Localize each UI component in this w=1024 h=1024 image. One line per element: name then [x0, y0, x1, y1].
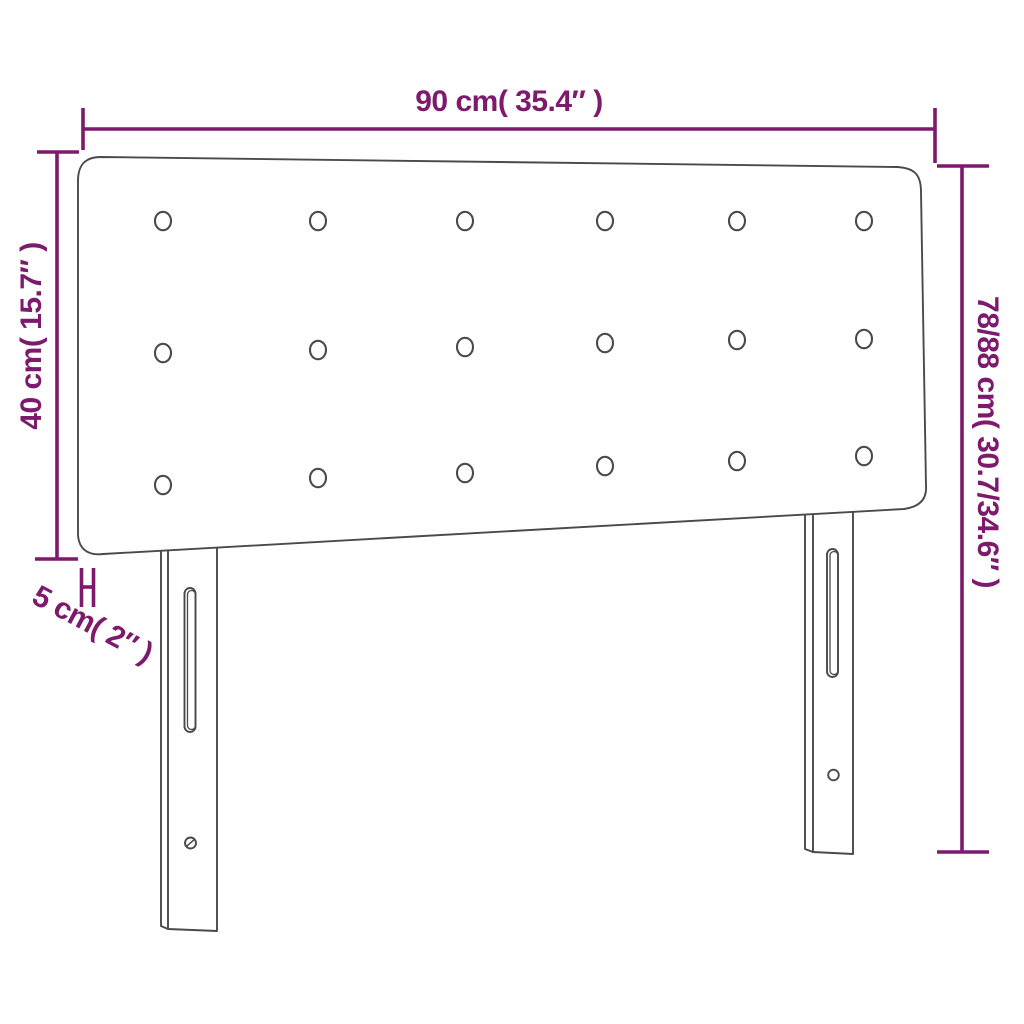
right-leg: [805, 502, 853, 854]
product-drawing: [78, 157, 926, 931]
tuft-button: [729, 212, 745, 230]
tuft-button: [155, 476, 171, 494]
headboard-dimension-diagram: 90 cm( 35.4″ ) 40 cm( 15.7″ ) 78/88 cm( …: [0, 0, 1024, 1024]
left-leg-outline: [161, 542, 217, 931]
left-leg: [161, 542, 217, 931]
tuft-button: [310, 212, 326, 230]
tuft-button: [155, 344, 171, 362]
tuft-button: [597, 334, 613, 352]
headboard-panel: [78, 157, 926, 554]
tuft-button: [856, 330, 872, 348]
tuft-button: [597, 212, 613, 230]
tuft-button: [856, 447, 872, 465]
tuft-button: [729, 331, 745, 349]
tuft-button: [856, 212, 872, 230]
tuft-button: [457, 338, 473, 356]
tuft-button: [597, 457, 613, 475]
tuft-button: [457, 464, 473, 482]
width-dimension-label: 90 cm( 35.4″ ): [415, 85, 602, 118]
tuft-button: [310, 469, 326, 487]
tuft-button: [457, 212, 473, 230]
tuft-button: [310, 341, 326, 359]
tuft-button: [729, 452, 745, 470]
total-height-dimension-label: 78/88 cm( 30.7/34.6″ ): [971, 296, 1004, 588]
diagram-canvas: 90 cm( 35.4″ ) 40 cm( 15.7″ ) 78/88 cm( …: [0, 0, 1024, 1024]
panel-height-dimension-label: 40 cm( 15.7″ ): [15, 242, 48, 429]
tuft-button: [155, 212, 171, 230]
